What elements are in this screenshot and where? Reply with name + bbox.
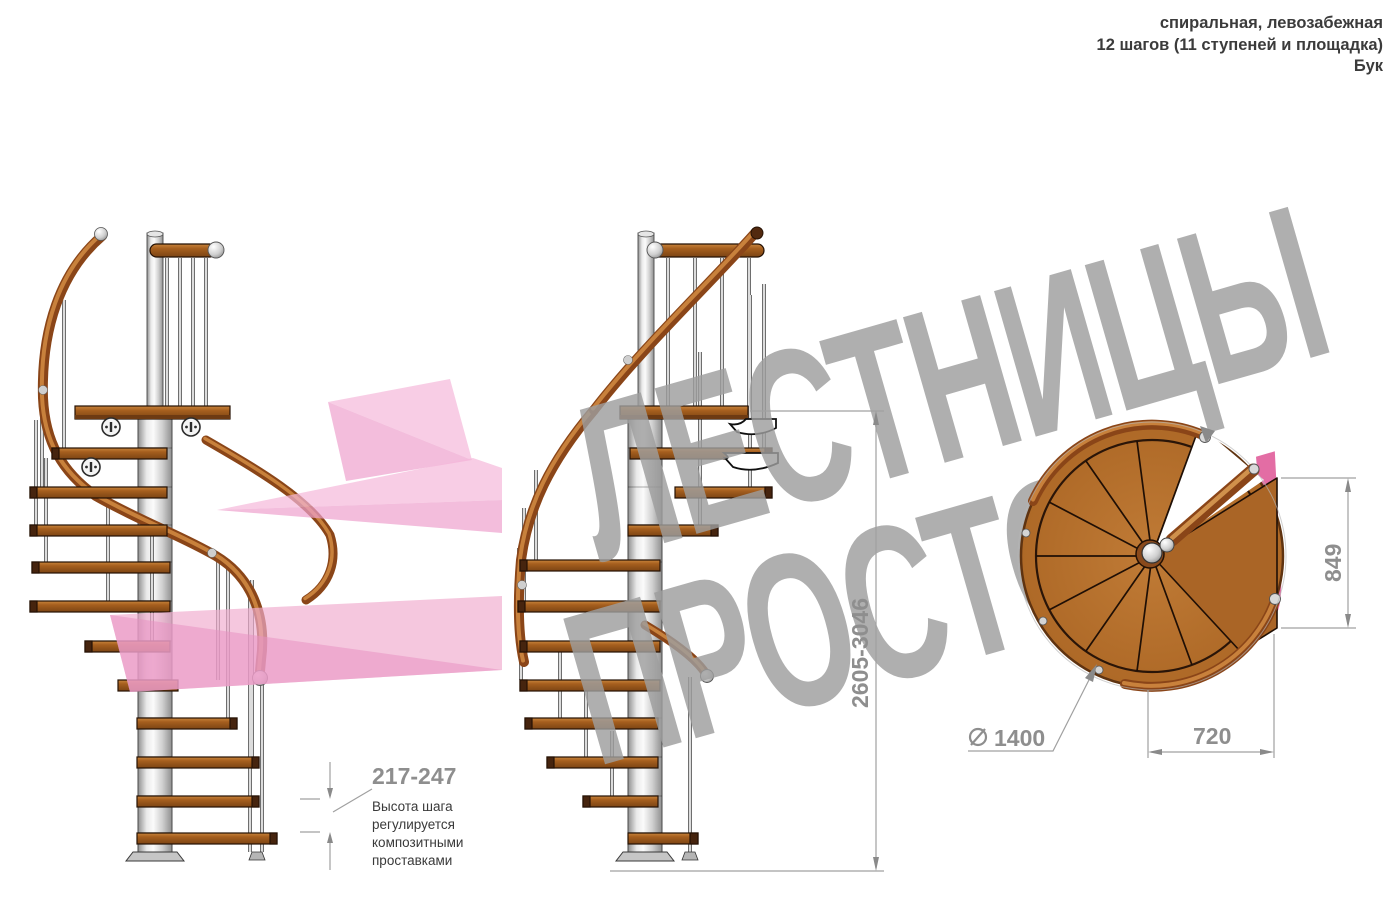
- dim-total-height-value: 2605-3046: [847, 598, 873, 708]
- step-height-note: Высота шага регулируется композитными пр…: [372, 799, 463, 868]
- dim-step-height-value: 217-247: [372, 763, 456, 789]
- rail-ball-icon: [1160, 538, 1174, 552]
- rim-pad: [1039, 617, 1047, 625]
- title-line-steps: 12 шагов (11 ступеней и площадка): [1097, 35, 1383, 57]
- note-line: композитными: [372, 835, 463, 850]
- arrow-down-icon: [873, 857, 879, 871]
- rim-pad: [1022, 529, 1030, 537]
- plan-and-dimensions-layer: 217-247 2605-3046 849 720 1400 Высота ша…: [0, 0, 1400, 907]
- arrow-up-icon: [327, 832, 333, 843]
- dim-total-height-lines: [610, 411, 884, 871]
- dim-landing-width-value: 720: [1193, 723, 1231, 749]
- arrow-down-icon: [327, 788, 333, 799]
- rail-end-cap-icon: [1249, 464, 1259, 474]
- title-block: спиральная, левозабежная 12 шагов (11 ст…: [1097, 13, 1383, 78]
- note-line: регулируется: [372, 817, 455, 832]
- note-line: Высота шага: [372, 799, 453, 814]
- drawing-canvas: ЛЕСТНИЦЫ ПРОСТО.ру: [0, 0, 1400, 907]
- arrow-up-icon: [873, 411, 879, 425]
- plan-view: [1018, 422, 1286, 690]
- arrow-down-icon: [1345, 614, 1351, 628]
- title-line-type: спиральная, левозабежная: [1097, 13, 1383, 35]
- dim-diameter-value: 1400: [994, 725, 1045, 751]
- note-line: проставками: [372, 853, 452, 868]
- center-pole-hub: [1142, 543, 1162, 563]
- arrow-left-icon: [1148, 749, 1162, 755]
- title-line-material: Бук: [1097, 56, 1383, 78]
- arrow-up-icon: [1345, 478, 1351, 492]
- arrow-right-icon: [1260, 749, 1274, 755]
- dim-landing-depth-value: 849: [1320, 544, 1346, 582]
- dim-step-height-lines: [300, 762, 372, 870]
- diameter-sign-icon: [970, 729, 986, 745]
